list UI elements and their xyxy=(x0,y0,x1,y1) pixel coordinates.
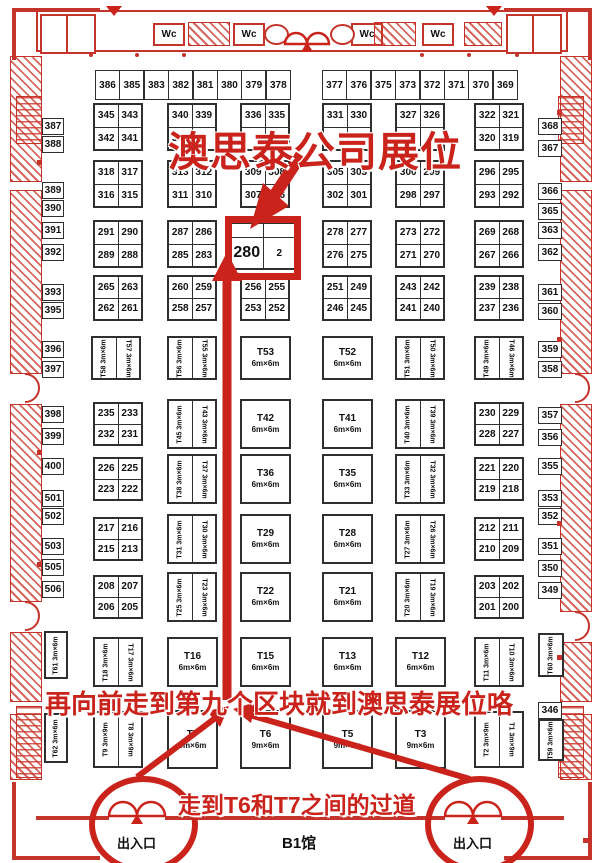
wall-door-arc xyxy=(25,374,39,402)
annotation-route-note: 再向前走到第九个区块就到澳思泰展位咯 xyxy=(45,684,513,721)
route-arrow-head xyxy=(212,252,242,281)
entrance-door-icon xyxy=(473,802,501,816)
entrance-label: 出入口 xyxy=(117,833,156,852)
entrance-door-icon xyxy=(109,802,137,816)
right-leg-line xyxy=(243,713,470,779)
entrance-door-icon xyxy=(445,802,473,816)
entrance-label: 出入口 xyxy=(453,833,492,852)
top-center-door-icon xyxy=(285,33,307,44)
wall-door-arc xyxy=(575,374,589,402)
top-center-door-icon xyxy=(307,33,329,44)
top-marker-triangle xyxy=(106,6,122,16)
entrance-door-icon xyxy=(137,802,165,816)
wall-door-arc xyxy=(25,602,39,630)
floor-plan: WcWcWcWc38638538338238138037937837737637… xyxy=(0,0,600,863)
annotation-company-booth: 澳思泰公司展位 xyxy=(168,118,462,178)
annotation-aisle-note: 走到T6和T7之间的过道 xyxy=(178,786,416,820)
wall-door-arc xyxy=(575,612,589,640)
left-leg-line xyxy=(137,713,222,777)
top-marker-triangle xyxy=(486,6,502,16)
